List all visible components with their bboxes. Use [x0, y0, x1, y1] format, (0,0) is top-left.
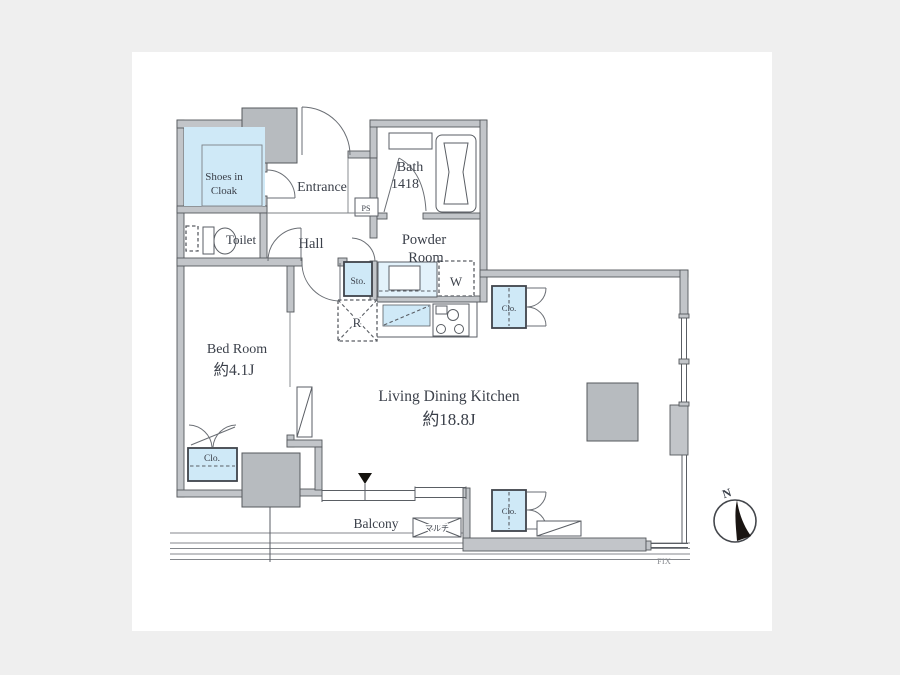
powder-room-label-2: Room [408, 250, 444, 266]
bedroom-size-label: 約4.1J [214, 361, 255, 379]
toilet-cistern [186, 226, 198, 251]
pillar-bedroom [242, 453, 300, 507]
storage-label: Sto. [350, 277, 365, 287]
closet-kitchen-label: Clo. [502, 303, 516, 313]
ldk-label: Living Dining Kitchen [378, 388, 519, 405]
multi-label: マルチ [425, 524, 449, 533]
closet-bedroom-label: Clo. [204, 454, 220, 464]
powder-room-label-1: Powder [402, 232, 446, 248]
floor-plan: マルチ N Shoes in Cloak Entrance Bath 1418 … [0, 0, 900, 675]
refrigerator-label: R [353, 315, 362, 330]
bath-counter [389, 133, 432, 149]
hall-label: Hall [299, 236, 324, 252]
pipe-space-label: PS [362, 204, 371, 213]
ldk-size-label: 約18.8J [422, 410, 476, 429]
bathtub [436, 135, 476, 212]
bath-label: Bath [397, 160, 423, 175]
vanity-basin [389, 266, 420, 290]
pillar-living [587, 383, 638, 441]
closet-living-label: Clo. [502, 506, 516, 516]
shoes-in-cloak-label-1: Shoes in [205, 171, 243, 183]
entrance-label: Entrance [297, 180, 347, 195]
balcony-label: Balcony [354, 516, 399, 531]
bedroom-label: Bed Room [207, 342, 267, 357]
shoes-in-cloak-label-2: Cloak [211, 185, 238, 197]
fix-window-label: FIX [657, 556, 671, 566]
toilet-label: Toilet [226, 232, 257, 247]
toilet-tank [203, 227, 214, 254]
washer-label: W [450, 274, 463, 289]
multi-outlet-box: マルチ [413, 518, 461, 537]
bath-size-label: 1418 [391, 177, 419, 192]
